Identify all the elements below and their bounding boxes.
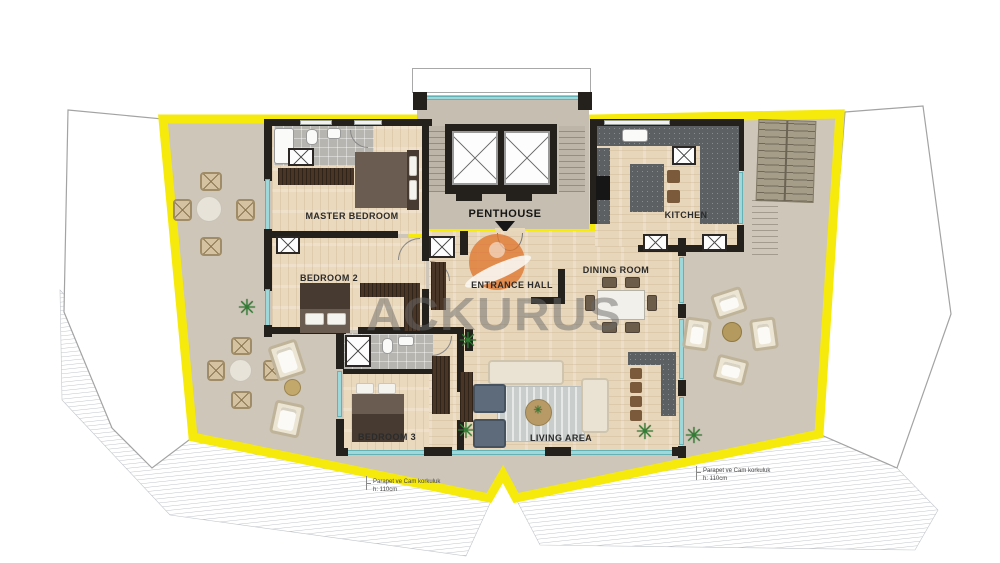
wall: [678, 238, 686, 256]
leader-line: [696, 466, 697, 480]
annotation-line: Parapet ve Cam korkuluk: [703, 467, 770, 475]
window-glass: [265, 289, 270, 327]
window: [604, 120, 670, 125]
wall: [506, 194, 532, 201]
window-glass: [679, 319, 684, 379]
dining-chair: [625, 322, 640, 333]
wall: [413, 92, 427, 110]
shaft-box: [702, 234, 727, 251]
watermark: ACKURUS: [366, 287, 622, 341]
leader-line: [696, 472, 701, 473]
room-label-dining-room: DINING ROOM: [583, 265, 649, 275]
toilet: [306, 129, 318, 145]
bedroom3-bed: [352, 394, 404, 416]
annotation-line: Parapet ve Cam korkuluk: [373, 478, 440, 486]
parapet-annotation-right: Parapet ve Cam korkuluk h: 110cm: [703, 467, 770, 483]
window-glass: [343, 450, 680, 455]
window: [354, 120, 382, 125]
wall: [422, 124, 429, 234]
wall: [264, 119, 432, 126]
closet: [432, 356, 450, 414]
wall: [336, 448, 348, 456]
annotation-line: h: 110cm: [373, 486, 440, 494]
wall-column: [460, 231, 468, 255]
terrace-chair: [231, 337, 252, 355]
terrace-chair: [236, 199, 255, 221]
terrace-chair: [207, 360, 225, 381]
terrace-chair: [200, 172, 222, 191]
plant-icon: ✳: [238, 297, 256, 319]
lounge-chair: [749, 316, 779, 351]
pillow: [409, 180, 417, 200]
core-stairs-right: [559, 126, 585, 192]
window: [300, 120, 332, 125]
penthouse-label: PENTHOUSE: [469, 208, 542, 220]
armchair: [473, 384, 506, 413]
shaft-box: [288, 148, 314, 166]
pillow: [378, 383, 396, 394]
parapet-annotation-left: Parapet ve Cam korkuluk h: 110cm: [373, 478, 440, 494]
elevator-car-icon: [452, 131, 498, 185]
stool: [630, 368, 642, 379]
plant-icon: ✳: [685, 425, 703, 447]
room-label-bedroom-3: BEDROOM 3: [358, 432, 416, 442]
wall: [737, 225, 744, 252]
window-glass: [679, 397, 684, 445]
terrace-table: [722, 322, 742, 342]
pillow: [327, 313, 346, 325]
wall: [424, 447, 452, 456]
stool: [630, 396, 642, 407]
window-glass: [337, 371, 342, 417]
plant-icon: ✳: [457, 420, 475, 442]
stove: [596, 176, 610, 200]
room-label-kitchen: KITCHEN: [665, 210, 708, 220]
window-glass: [265, 179, 270, 231]
sofa: [488, 360, 564, 385]
stool: [667, 190, 680, 203]
sink: [327, 128, 341, 139]
stool: [667, 170, 680, 183]
sofa: [581, 378, 609, 433]
terrace-table: [229, 359, 252, 382]
side-table: [284, 379, 301, 396]
plant-icon: ✳: [636, 421, 654, 443]
master-bed: [355, 152, 407, 208]
wall: [336, 333, 344, 369]
pillow: [305, 313, 324, 325]
armchair: [473, 419, 506, 448]
wall: [678, 304, 686, 318]
shaft-box: [429, 236, 455, 258]
bed-headboard: [300, 283, 350, 309]
terrace-chair: [231, 391, 252, 409]
media-console: [460, 372, 473, 422]
plant-icon: ✳: [533, 406, 542, 417]
wall: [678, 380, 686, 396]
kitchen-sink: [622, 129, 648, 142]
wall: [456, 194, 482, 201]
room-label-bedroom-2: BEDROOM 2: [300, 273, 358, 283]
lounge-chair: [682, 316, 712, 351]
terrace-table: [196, 196, 222, 222]
room-label-entrance-hall: ENTRANCE HALL: [471, 280, 553, 290]
wall: [590, 126, 597, 224]
annotation-line: h: 110cm: [703, 475, 770, 483]
floorplan: ✳ ✳ ✳ ✳ ✳ ✳ ACKURUS PENTHOUSE MASTER BED…: [0, 0, 1000, 563]
terrace-chair: [173, 199, 192, 221]
core-glass-wall: [421, 96, 585, 100]
shaft-box: [643, 234, 668, 251]
wall: [343, 369, 435, 374]
wall: [264, 229, 272, 291]
shaft-box: [276, 236, 300, 254]
dining-chair: [625, 277, 640, 288]
wardrobe: [278, 168, 354, 185]
wall: [545, 447, 571, 456]
wall: [422, 231, 429, 261]
terrace-chair: [200, 237, 222, 256]
wall: [264, 325, 272, 337]
leader-line: [366, 483, 371, 484]
stool: [630, 382, 642, 393]
wall: [264, 119, 272, 181]
kitchen-counter: [597, 126, 701, 146]
room-label-living-area: LIVING AREA: [530, 433, 592, 443]
bar-counter: [661, 352, 676, 416]
kitchen-island: [630, 164, 664, 212]
shaft-box: [672, 146, 696, 165]
pillow: [409, 156, 417, 176]
elevator-car-icon: [504, 131, 550, 185]
dining-chair: [647, 295, 657, 311]
wall: [578, 92, 592, 110]
core-balcony-outline: [412, 68, 591, 93]
wall: [672, 447, 684, 456]
stairs-step-notes: [752, 200, 778, 255]
window-glass: [679, 257, 684, 303]
room-label-master-bedroom: MASTER BEDROOM: [305, 211, 398, 221]
pillow: [356, 383, 374, 394]
